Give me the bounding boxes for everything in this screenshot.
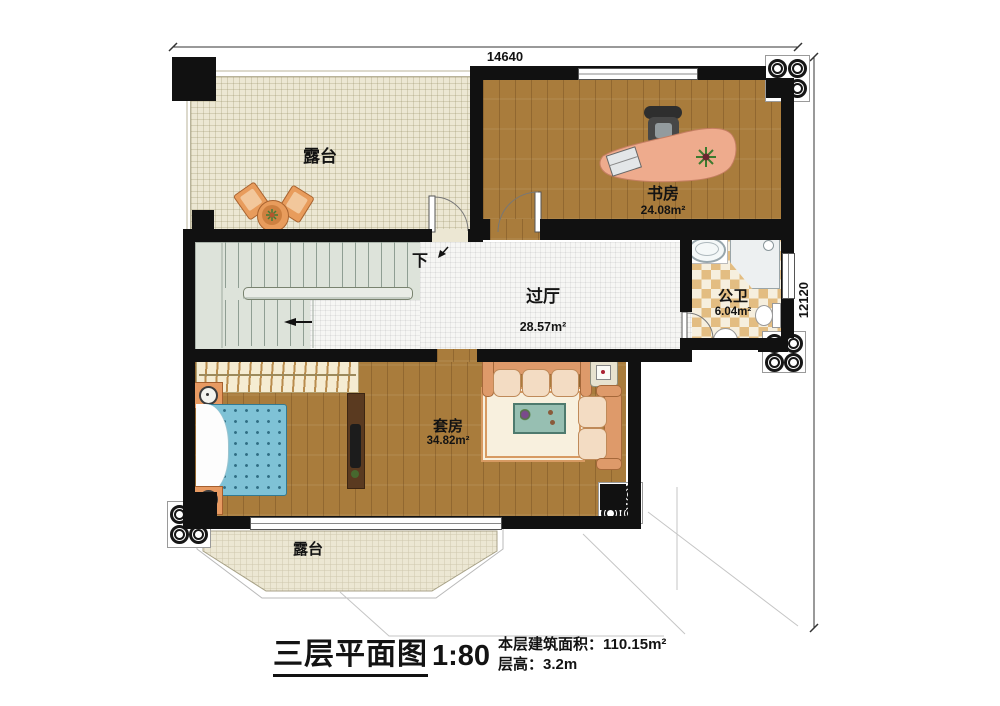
door-arc (498, 192, 538, 232)
wall (470, 66, 483, 242)
wall (183, 229, 432, 242)
room-area-study: 24.08m² (628, 204, 698, 217)
wall (680, 232, 692, 312)
drawing-scale: 1:80 (432, 641, 490, 673)
dimension-top: 14640 (470, 50, 540, 64)
stairs-down-label: 下 (408, 253, 432, 271)
column-icon (784, 353, 803, 372)
table-flower (266, 209, 278, 221)
dimension-line-right (810, 53, 818, 632)
wall (192, 210, 214, 229)
floor-height-value: 3.2m (543, 656, 577, 673)
wall (758, 338, 788, 352)
room-area-bathroom: 6.04m² (701, 306, 765, 319)
dimension-right: 12120 (797, 265, 811, 335)
wall (781, 80, 794, 338)
floor-area-line: 本层建筑面积：110.15m² (498, 637, 666, 654)
floor-area-value: 110.15m² (603, 636, 666, 653)
door-leaf (682, 312, 687, 340)
drawing-title: 三层平面图 (273, 638, 428, 677)
floor-height-label: 层高： (498, 656, 543, 673)
wall (628, 349, 641, 529)
column-icon (788, 59, 807, 78)
window (578, 68, 698, 80)
floor-area-label: 本层建筑面积： (498, 636, 603, 653)
floor-height-line: 层高：3.2m (498, 657, 577, 674)
column-icon (765, 353, 784, 372)
room-label-suite: 套房 (413, 419, 483, 436)
wall (477, 349, 692, 362)
wall (483, 219, 490, 240)
wall (183, 349, 437, 362)
room-label-bathroom: 公卫 (701, 289, 765, 306)
wall (600, 484, 626, 510)
room-label-study: 书房 (628, 186, 698, 204)
door-leaf (429, 196, 435, 232)
sliding-door-window (250, 517, 502, 530)
wall (468, 229, 483, 242)
room-label-hall: 过厅 (503, 288, 583, 307)
chimney (172, 57, 216, 101)
stair-guides (222, 243, 410, 348)
room-area-hall: 28.57m² (503, 321, 583, 335)
door-arc (435, 197, 468, 231)
room-label-terrace-top: 露台 (288, 148, 352, 167)
room-label-terrace-bottom: 露台 (276, 542, 340, 559)
wall (540, 219, 794, 240)
column-icon (768, 59, 787, 78)
plant (696, 147, 716, 167)
wall (185, 492, 217, 518)
window (782, 253, 795, 299)
wall (183, 229, 195, 362)
room-area-suite: 34.82m² (413, 435, 483, 448)
stair-arrow-head (284, 318, 296, 326)
floor-plan-canvas: 14640 12120 露台 书房 24.08m² 公卫 6.04m² 过厅 2… (0, 0, 1000, 706)
